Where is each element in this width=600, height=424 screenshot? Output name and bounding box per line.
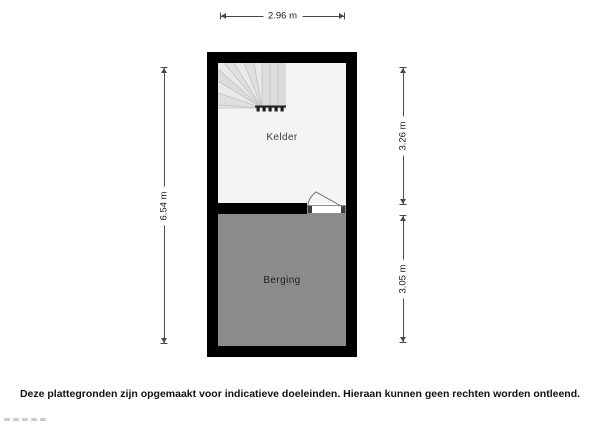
dimension-endcap xyxy=(160,343,167,344)
arrow-down-icon xyxy=(161,338,167,343)
dimension-endcap xyxy=(399,204,406,205)
dimension-label: 3.26 m xyxy=(396,116,409,155)
arrow-left-icon xyxy=(221,13,226,19)
stair-entry-comb-icon xyxy=(255,106,286,112)
watermark-dash-icon xyxy=(40,418,46,421)
room-berging: Berging xyxy=(218,214,346,346)
floorplan-canvas: Kelder Berging xyxy=(207,52,357,357)
dimension-label: 6.54 m xyxy=(157,186,170,225)
dimension-total-height: 6.54 m xyxy=(158,67,169,344)
arrow-down-icon xyxy=(400,337,406,342)
watermark-dash-icon xyxy=(31,418,37,421)
watermark-dash-icon xyxy=(22,418,28,421)
dimension-label: 3.05 m xyxy=(396,259,409,298)
dimension-label: 2.96 m xyxy=(263,10,302,23)
watermark-marks xyxy=(4,408,49,424)
arrow-up-icon xyxy=(400,68,406,73)
arrow-up-icon xyxy=(161,68,167,73)
disclaimer-text: Deze plattegronden zijn opgemaakt voor i… xyxy=(0,388,600,400)
arrow-down-icon xyxy=(400,199,406,204)
dimension-total-width: 2.96 m xyxy=(220,11,345,21)
dimension-kelder-height: 3.26 m xyxy=(397,67,408,205)
dimension-endcap xyxy=(344,13,345,20)
room-label: Kelder xyxy=(266,132,297,143)
floorplan-page: 2.96 m 6.54 m 3.26 m 3.05 m Kelder Bergi… xyxy=(0,0,600,424)
dimension-endcap xyxy=(399,342,406,343)
winder-staircase-icon xyxy=(218,63,286,113)
arrow-up-icon xyxy=(400,216,406,221)
watermark-dash-icon xyxy=(4,418,10,421)
arrow-right-icon xyxy=(339,13,344,19)
door-swing-icon xyxy=(303,188,347,210)
room-label: Berging xyxy=(263,275,300,286)
watermark-dash-icon xyxy=(13,418,19,421)
dimension-berging-height: 3.05 m xyxy=(397,215,408,343)
